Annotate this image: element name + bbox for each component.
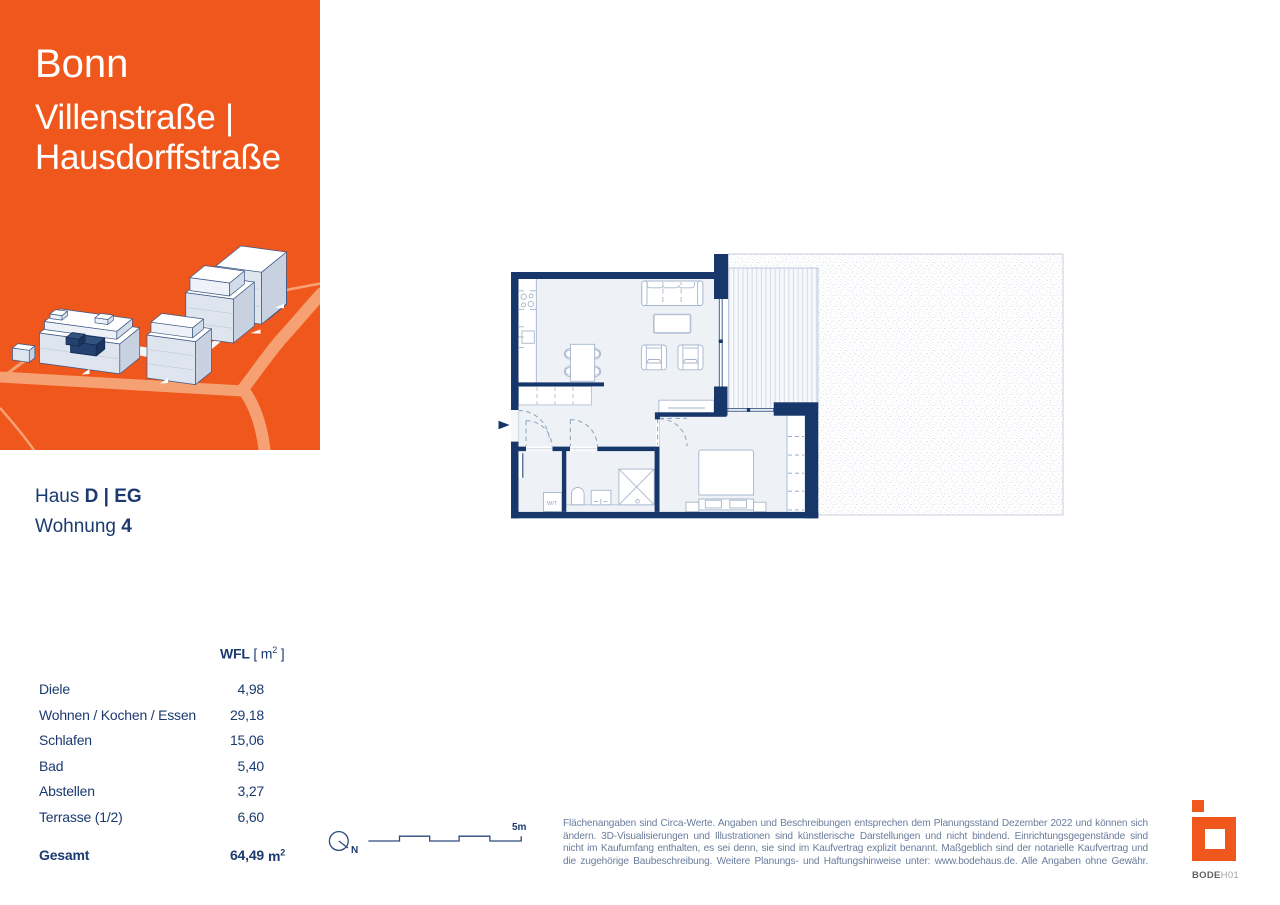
svg-text:5m: 5m [512, 822, 527, 833]
svg-text:W/T: W/T [547, 501, 558, 507]
svg-text:N: N [351, 845, 358, 856]
